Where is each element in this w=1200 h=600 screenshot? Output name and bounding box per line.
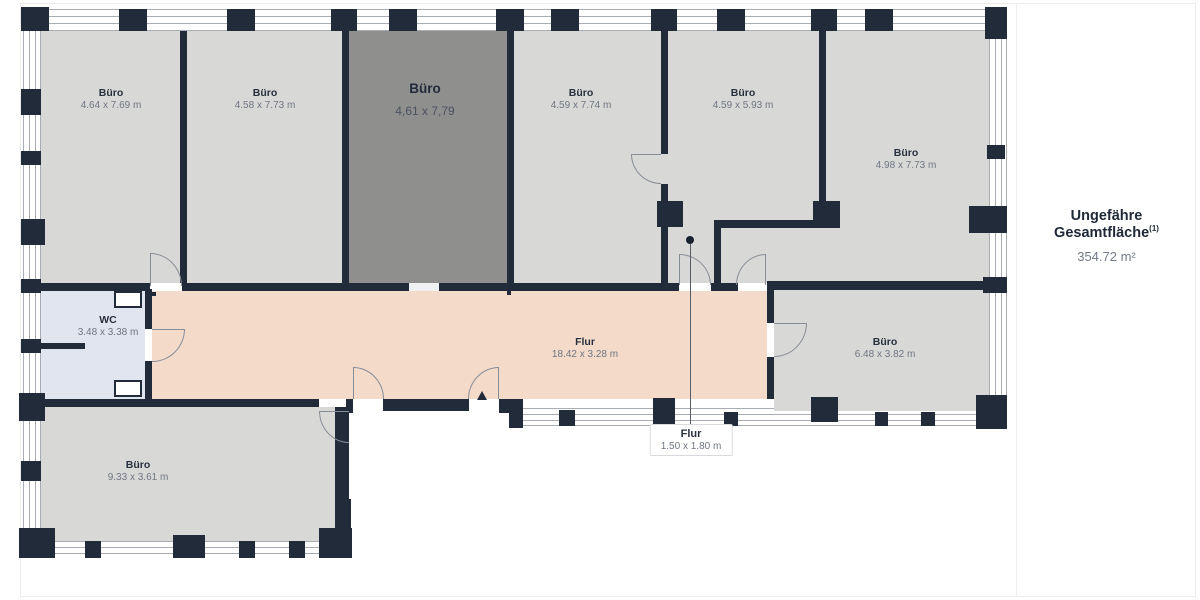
window-pillar	[976, 395, 1007, 429]
window-pillar	[811, 397, 838, 422]
page: Büro 4.64 x 7.69 m Büro 4.58 x 7.73 m Bü…	[0, 0, 1200, 600]
room-dims: 4.59 x 7.74 m	[551, 100, 612, 112]
total-area-title: Ungefähre Gesamtfläche(1)	[1017, 208, 1196, 241]
window-pillar	[496, 9, 524, 31]
wall	[383, 399, 469, 411]
window-pillar	[921, 412, 935, 426]
window-pillar	[389, 9, 417, 31]
wall	[509, 399, 523, 428]
window-pillar	[19, 528, 55, 558]
window-pillar	[865, 9, 893, 31]
wall	[41, 399, 319, 407]
window-pillar	[85, 541, 101, 558]
room-dims: 6.48 x 3.82 m	[855, 349, 916, 361]
wall	[767, 290, 774, 323]
room-label-buero-2: Büro 4.58 x 7.73 m	[235, 87, 296, 112]
door-opening	[409, 283, 439, 291]
window-pillar	[969, 206, 1007, 233]
window-pillar	[239, 541, 255, 558]
room-name: Büro	[551, 87, 612, 99]
window-pillar	[21, 151, 41, 165]
window-pillar	[173, 535, 205, 558]
room-name: Flur	[552, 336, 618, 348]
wall	[767, 281, 989, 290]
wall	[711, 283, 738, 291]
room-dims: 1.50 x 1.80 m	[661, 441, 722, 452]
leader-line	[690, 244, 691, 424]
room-label-buero-5: Büro 4.59 x 5.93 m	[713, 87, 774, 112]
room-label-buero-8: Büro 9.33 x 3.61 m	[108, 459, 169, 484]
room-name: Flur	[661, 428, 722, 440]
room-name: Büro	[876, 147, 937, 159]
total-area-panel: Ungefähre Gesamtfläche(1) 354.72 m²	[1016, 3, 1196, 597]
room-label-buero-4: Büro 4.59 x 7.74 m	[551, 87, 612, 112]
wall	[819, 31, 826, 203]
wall	[41, 343, 85, 349]
window-pillar	[289, 541, 305, 558]
dimension-tick	[152, 292, 156, 296]
wall	[439, 283, 679, 291]
wall	[182, 283, 409, 291]
leader-dot	[686, 236, 694, 244]
room-dims: 4.64 x 7.69 m	[81, 100, 142, 112]
window-pillar	[21, 339, 41, 353]
room-name: Büro	[81, 87, 142, 99]
wall	[180, 31, 187, 283]
room-label-wc: WC 3.48 x 3.38 m	[78, 314, 139, 339]
window-pillar	[331, 9, 357, 31]
window-pillar	[985, 7, 1007, 39]
wall	[714, 220, 721, 283]
window-pillar	[875, 412, 888, 426]
room-label-flur: Flur 18.42 x 3.28 m	[552, 336, 618, 361]
toilet-fixture	[114, 380, 142, 397]
wall	[661, 184, 668, 283]
room-dims: 4.58 x 7.73 m	[235, 100, 296, 112]
room-buero-8[interactable]	[41, 407, 335, 541]
room-dims: 9.33 x 3.61 m	[108, 472, 169, 484]
window-pillar	[717, 9, 745, 31]
total-area-footnote: (1)	[1149, 224, 1159, 233]
room-name: WC	[78, 314, 139, 326]
window-pillar	[119, 9, 147, 31]
wall	[767, 357, 774, 399]
window-pillar	[21, 279, 41, 293]
room-label-buero-1: Büro 4.64 x 7.69 m	[81, 87, 142, 112]
window-pillar	[983, 277, 1007, 293]
floor-plan: Büro 4.64 x 7.69 m Büro 4.58 x 7.73 m Bü…	[1, 1, 1017, 600]
room-dims: 4,61 x 7,79	[395, 105, 454, 119]
window-pillar	[651, 9, 677, 31]
wall	[507, 31, 514, 283]
room-name: Büro	[713, 87, 774, 99]
room-dims: 4.98 x 7.73 m	[876, 160, 937, 172]
room-dims: 3.48 x 3.38 m	[78, 327, 139, 339]
window-pillar	[987, 145, 1005, 159]
entrance-arrow-icon	[477, 391, 487, 400]
total-area-block: Ungefähre Gesamtfläche(1) 354.72 m²	[1017, 208, 1196, 264]
window-pillar	[551, 9, 579, 31]
window-pillar	[653, 398, 675, 426]
room-label-buero-7: Büro 6.48 x 3.82 m	[855, 336, 916, 361]
total-area-title-text: Ungefähre Gesamtfläche	[1054, 208, 1149, 241]
window-pillar	[21, 219, 45, 245]
window-pillar	[811, 9, 837, 31]
window-pillar	[19, 393, 45, 421]
wall	[41, 283, 150, 291]
wall	[342, 31, 349, 283]
wall	[145, 289, 152, 329]
window-pillar	[319, 528, 352, 558]
wall	[657, 201, 683, 227]
wall	[145, 361, 152, 399]
room-buero-3[interactable]	[349, 31, 507, 283]
wall	[661, 31, 668, 154]
window-pillar	[21, 89, 41, 115]
window-pillar	[227, 9, 255, 31]
room-flur[interactable]	[152, 291, 767, 399]
room-name: Büro	[108, 459, 169, 471]
room-name: Büro	[395, 81, 454, 97]
toilet-fixture	[114, 291, 142, 308]
room-dims: 18.42 x 3.28 m	[552, 349, 618, 361]
room-label-buero-6: Büro 4.98 x 7.73 m	[876, 147, 937, 172]
room-dims: 4.59 x 5.93 m	[713, 100, 774, 112]
window-pillar	[21, 461, 41, 481]
room-name: Büro	[855, 336, 916, 348]
window-pillar	[559, 410, 575, 426]
room-label-buero-3: Büro 4,61 x 7,79	[395, 81, 454, 118]
dimension-tick	[507, 291, 511, 295]
wall	[714, 220, 840, 228]
window-pillar	[21, 7, 49, 31]
total-area-value: 354.72 m²	[1017, 249, 1196, 264]
flur-callout: Flur 1.50 x 1.80 m	[650, 424, 733, 456]
room-name: Büro	[235, 87, 296, 99]
